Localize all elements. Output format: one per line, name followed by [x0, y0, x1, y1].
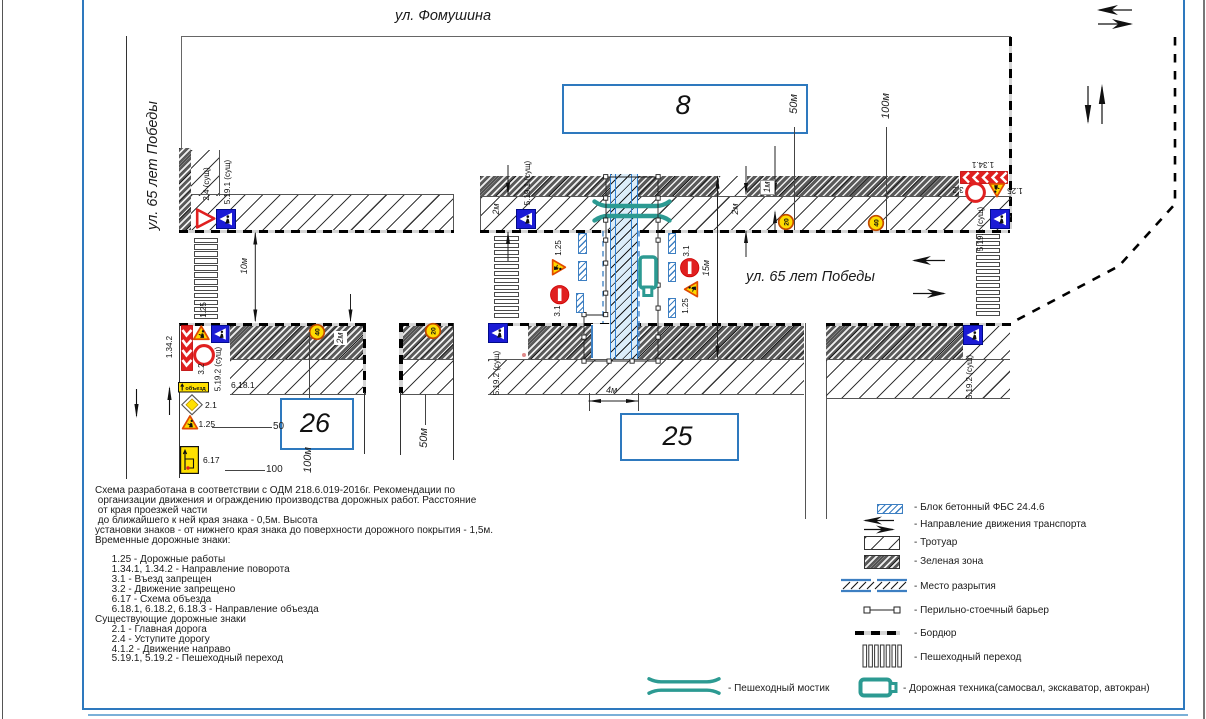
svg-text:объезд: объезд: [185, 384, 206, 391]
